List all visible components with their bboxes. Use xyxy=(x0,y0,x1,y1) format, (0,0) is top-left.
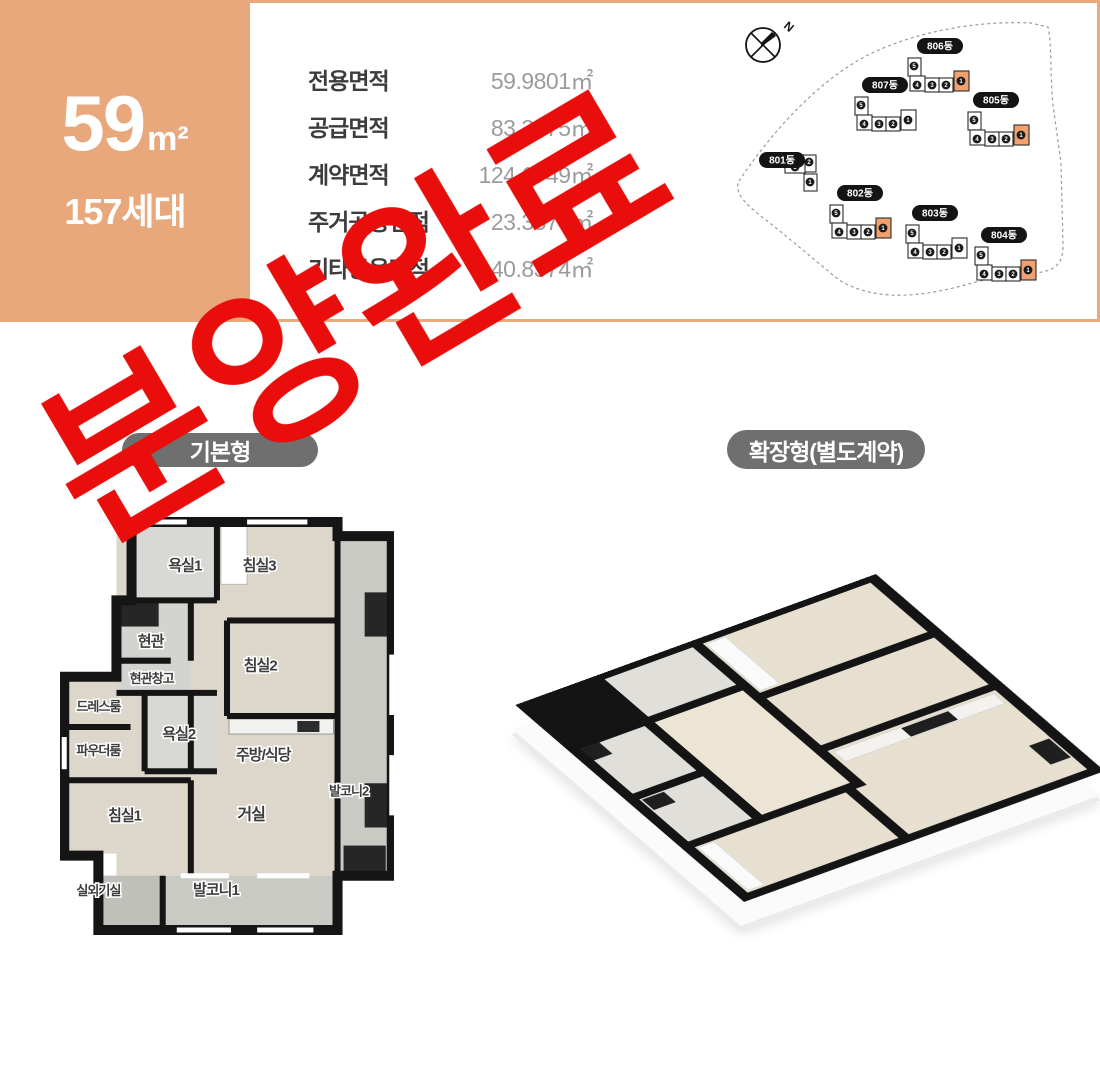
area-row-value: 23.3574㎡ xyxy=(491,203,593,237)
room-label: 실외기실 xyxy=(76,883,120,898)
site-building: 54321803동 xyxy=(906,205,967,259)
building-label: 807동 xyxy=(872,80,898,92)
room-label: 파우더룸 xyxy=(76,743,121,758)
area-row: 기타공용면적40.8374㎡ xyxy=(308,243,593,290)
area-row: 공급면적83.3375㎡ xyxy=(308,102,593,149)
area-row-value: 83.3375㎡ xyxy=(491,109,593,143)
unit-households: 157세대 xyxy=(64,183,185,235)
area-row-label: 공급면적 xyxy=(308,109,389,143)
extended-type-pill: 확장형(별도계약) xyxy=(727,430,925,469)
area-row-value: 124.1749㎡ xyxy=(479,156,593,190)
area-row: 주거공용면적23.3574㎡ xyxy=(308,196,593,243)
area-row-label: 주거공용면적 xyxy=(308,203,429,237)
site-building: 54321804동 xyxy=(975,227,1036,281)
building-label: 806동 xyxy=(927,41,953,53)
room-label: 발코니2 xyxy=(329,783,369,798)
room-label: 욕실2 xyxy=(162,726,196,743)
unit-area-number: 59 xyxy=(61,78,144,169)
area-row-label: 전용면적 xyxy=(308,62,389,96)
compass: N xyxy=(746,19,797,62)
room-label: 침실1 xyxy=(108,807,142,824)
room-label: 현관창고 xyxy=(130,671,175,686)
building-label: 802동 xyxy=(847,188,873,200)
room-label: 발코니1 xyxy=(193,882,240,899)
basic-type-pill: 기본형 xyxy=(122,433,318,467)
room-label: 현관 xyxy=(138,634,165,651)
building-label: 804동 xyxy=(991,230,1017,242)
area-row-value: 59.9801㎡ xyxy=(491,62,593,96)
unit-info-card: 59 m² 157세대 전용면적59.9801㎡공급면적83.3375㎡계약면적… xyxy=(0,0,1100,322)
site-building: 54321807동 xyxy=(855,77,916,131)
compass-needle xyxy=(761,32,776,47)
room-label: 드레스룸 xyxy=(76,699,121,714)
compass-north-label: N xyxy=(781,19,797,35)
extended-type-label: 확장형(별도계약) xyxy=(749,433,903,467)
site-building: 231801동 xyxy=(759,152,817,191)
unit-area: 59 m² xyxy=(61,78,188,169)
room-label: 침실3 xyxy=(243,557,277,574)
unit-summary-box: 59 m² 157세대 xyxy=(0,0,250,322)
area-row-value: 40.8374㎡ xyxy=(491,250,593,284)
room-label: 주방/식당 xyxy=(236,746,292,764)
site-building: 54321806동 xyxy=(908,38,969,92)
extended-floor-plan-slab xyxy=(515,574,1100,902)
area-row: 계약면적124.1749㎡ xyxy=(308,149,593,196)
building-label: 805동 xyxy=(983,95,1009,107)
site-building: 54321802동 xyxy=(830,185,891,239)
basic-floor-plan: 욕실1침실3현관현관창고침실2드레스룸욕실2파우더룸주방/식당발코니2침실1거실… xyxy=(60,514,394,936)
basic-type-label: 기본형 xyxy=(190,433,250,467)
building-label: 801동 xyxy=(769,155,795,167)
site-building: 54321805동 xyxy=(968,92,1029,146)
unit-area-unit: m² xyxy=(147,120,189,159)
area-row-label: 계약면적 xyxy=(308,156,389,190)
area-row: 전용면적59.9801㎡ xyxy=(308,55,593,102)
room-label: 거실 xyxy=(237,805,265,823)
building-label: 803동 xyxy=(922,208,948,220)
site-map: N 231801동54321802동54321803동54321804동5432… xyxy=(731,13,1083,313)
extended-floor-plan-3d xyxy=(495,468,1095,1048)
area-row-label: 기타공용면적 xyxy=(308,250,429,284)
room-label: 욕실1 xyxy=(168,557,202,574)
room-label: 침실2 xyxy=(244,658,278,675)
apartment-type-page: 59 m² 157세대 전용면적59.9801㎡공급면적83.3375㎡계약면적… xyxy=(0,0,1100,1075)
area-table: 전용면적59.9801㎡공급면적83.3375㎡계약면적124.1749㎡주거공… xyxy=(308,55,593,290)
